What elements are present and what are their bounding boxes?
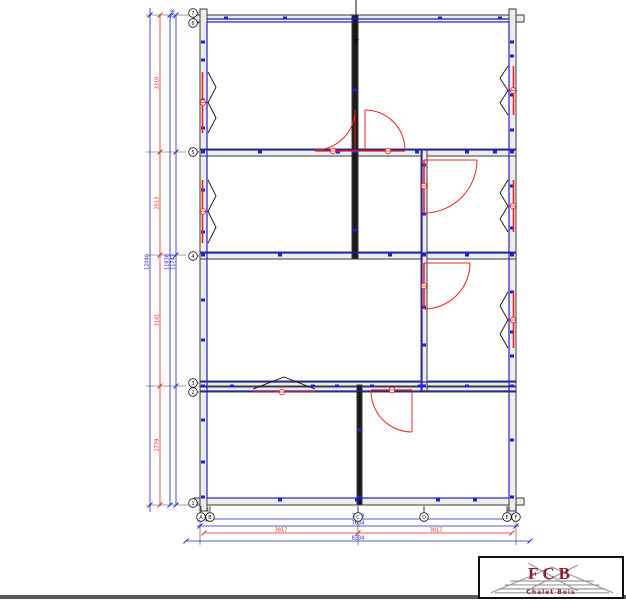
log-joint-marker: [224, 17, 228, 20]
log-joint-marker: [357, 496, 361, 499]
log-joint-marker: [388, 254, 392, 257]
log-joint-marker: [370, 385, 374, 388]
door-swing-arc: [315, 110, 355, 150]
log-joint-marker: [258, 151, 262, 154]
log-joint-marker: [465, 254, 469, 257]
floorplan-canvas: 1204033102513314127791183811743298298703…: [0, 0, 626, 601]
window-zigzag-icon: [500, 66, 508, 115]
log-joint-marker: [510, 385, 514, 388]
dimension-label: 12040: [145, 254, 151, 270]
door-swing-arc: [371, 391, 412, 432]
grid-bubble-label: 6: [191, 21, 194, 27]
wall: [357, 385, 362, 505]
log-joint-marker: [201, 151, 205, 154]
log-joint-marker: [422, 385, 426, 388]
dimension-label: 2513: [155, 197, 161, 210]
window-zigzag-icon: [208, 180, 216, 243]
log-joint-marker: [436, 499, 440, 502]
company-logo-box: FCB Chalet Bois: [478, 556, 624, 599]
grid-bubble-label: 1: [191, 501, 194, 507]
log-joint-marker: [278, 499, 282, 502]
log-joint-marker: [510, 151, 514, 154]
grid-bubble-label: A: [199, 515, 203, 521]
log-joint-marker: [473, 499, 477, 502]
dimension-label: 3310: [155, 77, 161, 90]
log-joint-marker: [201, 385, 205, 388]
dimension-label: 8234: [352, 536, 365, 542]
log-joint-marker: [283, 17, 287, 20]
dimension-label: 3817: [430, 528, 443, 534]
log-joint-marker: [510, 496, 514, 499]
log-joint-marker: [353, 89, 357, 92]
log-joint-marker: [422, 254, 426, 257]
window-zigzag-icon: [208, 72, 216, 133]
grid-bubble-label: E: [505, 515, 508, 521]
grid-bubble-label: 5: [191, 150, 194, 156]
log-joint-marker: [311, 385, 315, 388]
log-joint-marker: [230, 385, 234, 388]
logo-acronym: FCB: [480, 565, 622, 582]
log-joint-marker: [498, 17, 502, 20]
grid-bubble-label: B: [208, 515, 212, 521]
grid-bubble-label: F: [515, 515, 518, 521]
grid-bubble-label: 2: [191, 390, 194, 396]
logo-name: Chalet Bois: [480, 589, 622, 596]
log-joint-marker: [510, 355, 514, 358]
log-joint-marker: [418, 385, 422, 388]
log-joint-marker: [465, 151, 469, 154]
log-joint-marker: [355, 499, 359, 502]
door-swing-arc: [365, 110, 405, 150]
grid-bubble-label: D: [422, 515, 426, 521]
log-joint-marker: [510, 55, 514, 58]
log-joint-marker: [422, 344, 426, 347]
dimension-label: 2779: [155, 439, 161, 452]
grid-bubble-label: C: [356, 515, 360, 521]
log-joint-marker: [357, 429, 361, 432]
log-joint-marker: [201, 299, 205, 302]
log-joint-marker: [201, 496, 205, 499]
log-joint-marker: [201, 254, 205, 257]
grid-bubble-label: 7: [191, 11, 194, 17]
grid-bubble-label: 3: [191, 381, 194, 387]
door-swing-arc: [424, 263, 470, 309]
log-joint-marker: [201, 461, 205, 464]
dimension-label: 3817: [275, 528, 288, 534]
log-joint-marker: [510, 41, 514, 44]
dimension-label: 11743: [171, 254, 177, 270]
dimension-label: 3141: [155, 314, 161, 327]
log-joint-marker: [493, 151, 497, 154]
door-swing-arc: [424, 160, 477, 213]
grid-bubble-label: 4: [191, 254, 194, 260]
window-zigzag-icon: [500, 292, 508, 348]
log-joint-marker: [415, 151, 419, 154]
log-joint-marker: [465, 385, 469, 388]
log-joint-marker: [201, 59, 205, 62]
wall: [509, 9, 516, 511]
log-joint-marker: [438, 17, 442, 20]
log-joint-marker: [201, 41, 205, 44]
log-joint-marker: [510, 439, 514, 442]
dimension-label: 298: [171, 9, 177, 19]
wall: [200, 9, 207, 511]
log-joint-marker: [278, 254, 282, 257]
window-zigzag-icon: [500, 180, 508, 232]
log-joint-marker: [510, 129, 514, 132]
log-joint-marker: [335, 385, 339, 388]
log-joint-marker: [201, 339, 205, 342]
log-joint-marker: [353, 229, 357, 232]
log-joint-marker: [510, 254, 514, 257]
log-joint-marker: [201, 419, 205, 422]
